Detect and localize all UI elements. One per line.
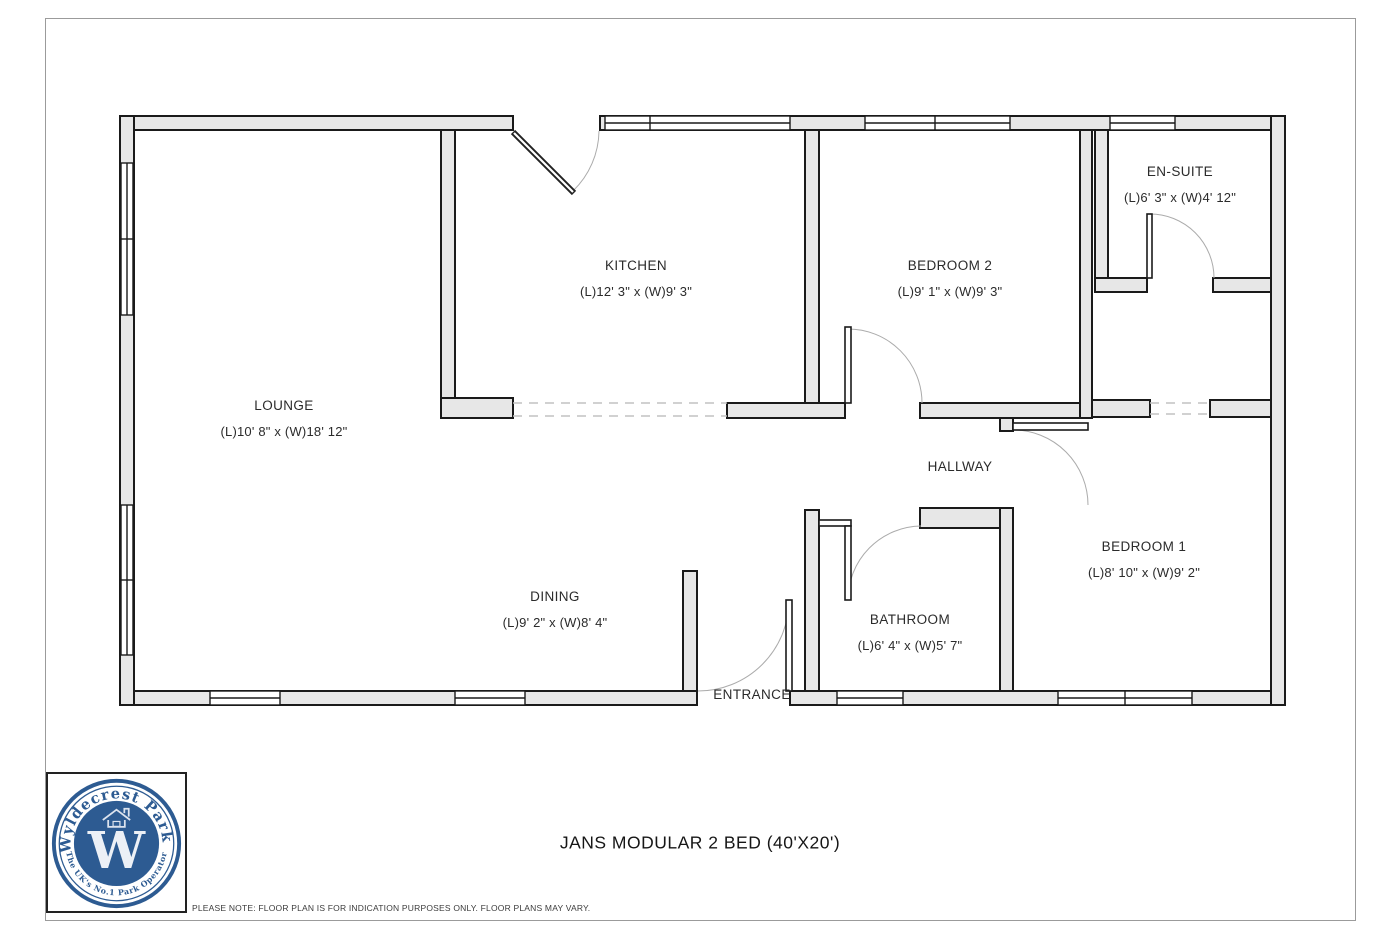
- window: [1110, 116, 1175, 130]
- wall: [683, 571, 697, 691]
- wall: [1095, 278, 1147, 292]
- room-name: DINING: [503, 589, 608, 605]
- window: [455, 691, 525, 705]
- wall: [1000, 508, 1013, 691]
- room-name: KITCHEN: [580, 258, 692, 274]
- wall: [120, 116, 513, 130]
- room-name: EN-SUITE: [1124, 164, 1236, 180]
- ensuite-door-arc: [1150, 214, 1214, 278]
- room-name: BEDROOM 2: [898, 258, 1003, 274]
- wyldecrest-parks-logo: Wyldecrest Parks The UK's No.1 Park Oper…: [46, 772, 187, 913]
- window: [1058, 691, 1192, 705]
- floor-plan-drawing: [0, 0, 1400, 932]
- wall: [1271, 116, 1285, 705]
- room-label-kitchen: KITCHEN (L)12' 3" x (W)9' 3": [580, 258, 692, 300]
- room-dimensions: (L)12' 3" x (W)9' 3": [580, 284, 692, 300]
- entrance-door-arc: [698, 600, 789, 691]
- room-dimensions: (L)8' 10" x (W)9' 2": [1088, 565, 1200, 581]
- window: [121, 163, 133, 315]
- bedroom2-door-arc: [848, 329, 922, 403]
- room-dimensions: (L)6' 4" x (W)5' 7": [858, 638, 963, 654]
- room-dimensions: (L)9' 2" x (W)8' 4": [503, 615, 608, 631]
- bathroom-door-arc: [848, 526, 921, 600]
- room-label-lounge: LOUNGE (L)10' 8" x (W)18' 12": [221, 398, 348, 440]
- room-name: LOUNGE: [221, 398, 348, 414]
- disclaimer-note: PLEASE NOTE: FLOOR PLAN IS FOR INDICATIO…: [192, 903, 590, 913]
- wall: [120, 691, 697, 705]
- room-name: BEDROOM 1: [1088, 539, 1200, 555]
- bathroom-partition: [819, 520, 851, 526]
- wall: [441, 398, 513, 418]
- wall: [805, 130, 819, 403]
- window: [121, 505, 133, 655]
- room-dimensions: (L)10' 8" x (W)18' 12": [221, 424, 348, 440]
- wall: [1000, 418, 1013, 431]
- bedroom1-door-arc: [1013, 430, 1088, 505]
- room-label-hallway: HALLWAY: [928, 459, 993, 475]
- wall: [805, 510, 819, 691]
- room-label-ensuite: EN-SUITE (L)6' 3" x (W)4' 12": [1124, 164, 1236, 206]
- wall: [1092, 400, 1150, 417]
- bedroom1-door-leaf: [1013, 423, 1088, 430]
- wall: [441, 130, 455, 400]
- bathroom-door-leaf: [845, 526, 851, 600]
- ensuite-door-leaf: [1147, 214, 1152, 278]
- entrance-door-leaf: [786, 600, 792, 691]
- room-name: ENTRANCE: [713, 687, 790, 703]
- wyldecrest-logo-icon: Wyldecrest Parks The UK's No.1 Park Oper…: [48, 774, 185, 911]
- room-name: HALLWAY: [928, 459, 993, 475]
- window: [605, 116, 790, 130]
- window: [210, 691, 280, 705]
- wall: [1080, 130, 1092, 418]
- wall: [920, 403, 1080, 418]
- kitchen-door-arc: [573, 131, 599, 191]
- wall: [727, 403, 845, 418]
- room-label-bedroom1: BEDROOM 1 (L)8' 10" x (W)9' 2": [1088, 539, 1200, 581]
- logo-monogram: W: [87, 820, 146, 880]
- plan-title: JANS MODULAR 2 BED (40'X20'): [560, 833, 840, 854]
- floor-plan-page: LOUNGE (L)10' 8" x (W)18' 12" KITCHEN (L…: [0, 0, 1400, 932]
- room-label-dining: DINING (L)9' 2" x (W)8' 4": [503, 589, 608, 631]
- window: [865, 116, 1010, 130]
- room-name: BATHROOM: [858, 612, 963, 628]
- wall: [1210, 400, 1271, 417]
- wall: [1213, 278, 1271, 292]
- wall: [1095, 130, 1108, 292]
- room-label-entrance: ENTRANCE: [713, 687, 790, 703]
- room-label-bathroom: BATHROOM (L)6' 4" x (W)5' 7": [858, 612, 963, 654]
- bedroom2-door-leaf: [845, 327, 851, 403]
- window: [837, 691, 903, 705]
- room-label-bedroom2: BEDROOM 2 (L)9' 1" x (W)9' 3": [898, 258, 1003, 300]
- wall: [920, 508, 1000, 528]
- room-dimensions: (L)6' 3" x (W)4' 12": [1124, 190, 1236, 206]
- room-dimensions: (L)9' 1" x (W)9' 3": [898, 284, 1003, 300]
